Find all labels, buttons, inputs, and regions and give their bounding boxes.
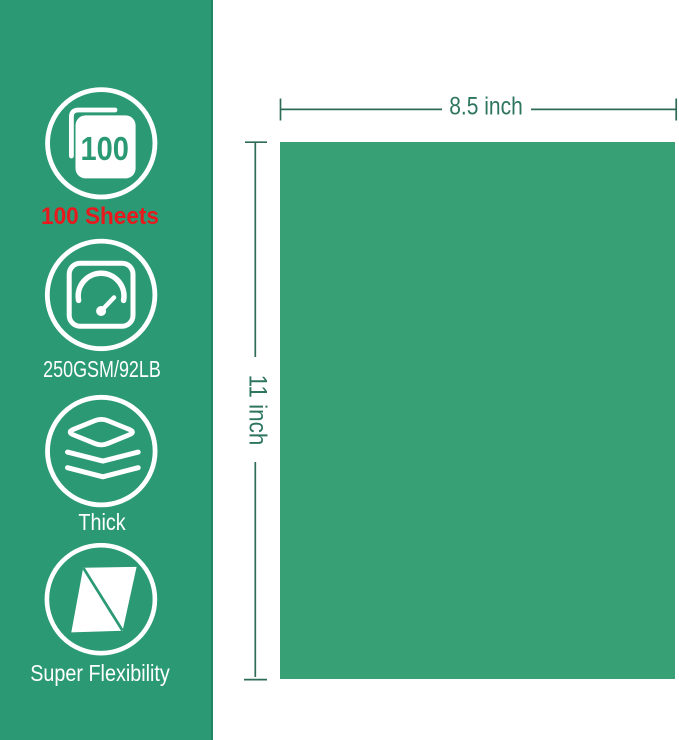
svg-text:11 inch: 11 inch [243,375,271,446]
svg-text:8.5 inch: 8.5 inch [449,92,523,120]
